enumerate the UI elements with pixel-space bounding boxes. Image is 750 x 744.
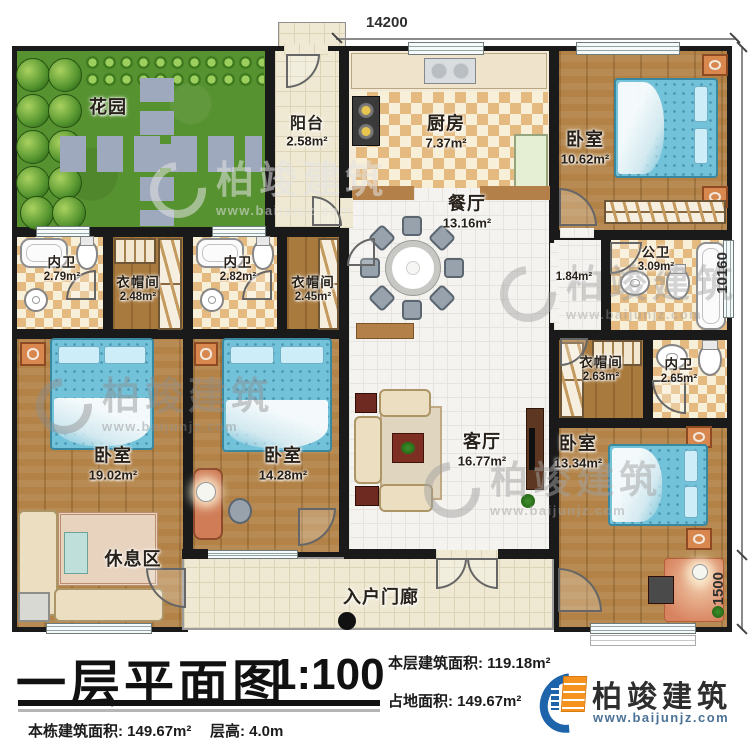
porch-wall-stub	[498, 549, 554, 559]
chair-icon	[402, 300, 422, 320]
pillow-icon	[104, 346, 146, 364]
coffee-table-icon	[392, 433, 424, 463]
brand-url: www.baijunjz.com	[593, 710, 729, 725]
room-label-cloak-left-1: 衣帽间 2.48m²	[116, 275, 160, 305]
garden-tree-icon	[48, 58, 82, 92]
pillow-icon	[230, 346, 274, 364]
room-label-balcony: 阳台 2.58m²	[286, 115, 327, 150]
room-label-dining: 餐厅 13.16m²	[443, 193, 491, 230]
window-icon	[590, 623, 696, 634]
room-label-cloak-left-2: 衣帽间 2.45m²	[291, 275, 335, 305]
plant-icon	[712, 606, 724, 618]
porch-column-icon	[338, 612, 356, 630]
garden-tree-icon	[16, 58, 50, 92]
room-label-garden: 花园	[89, 97, 127, 119]
room-label-kitchen: 厨房 7.37m²	[425, 113, 466, 150]
armchair-icon	[355, 393, 377, 413]
plan-scale: 1:100	[272, 650, 385, 700]
pillow-icon	[684, 486, 698, 518]
porch-wall-stub	[182, 549, 208, 559]
room-label-bedroom-left: 卧室 19.02m²	[89, 445, 137, 482]
pillow-icon	[280, 346, 324, 364]
stove-icon	[352, 96, 380, 146]
lamp-icon	[196, 482, 216, 502]
room-label-living: 客厅 16.77m²	[458, 431, 506, 468]
room-label-bath-left-1: 内卫 2.79m²	[44, 255, 80, 285]
toilet-icon	[698, 344, 722, 376]
corner-table-icon	[18, 592, 50, 622]
pillow-icon	[58, 346, 100, 364]
dimension-right: 10160	[714, 252, 731, 294]
nightstand-icon	[686, 528, 712, 550]
sink-icon	[24, 288, 48, 312]
dimension-line	[741, 48, 743, 556]
kitchen-sink-icon	[424, 58, 476, 84]
title-underline	[18, 700, 380, 706]
window-icon	[212, 226, 266, 237]
wardrobe-icon	[158, 238, 182, 330]
chair-icon	[228, 498, 252, 524]
chair-icon	[402, 216, 422, 236]
nightstand-icon	[194, 342, 218, 366]
armchair-icon	[355, 486, 379, 506]
garden-tree-icon	[48, 94, 82, 128]
room-label-cloak-right: 衣帽间 2.63m²	[579, 355, 623, 385]
garden-bushes-icon	[84, 54, 264, 90]
lamp-icon	[692, 564, 708, 580]
sideboard-icon	[356, 323, 414, 339]
garden-tree-icon	[52, 196, 86, 230]
bedroom-tr-door-gap	[560, 228, 594, 238]
title-underline-2	[18, 709, 380, 712]
sofa-icon	[379, 484, 433, 512]
garden-tree-icon	[16, 166, 50, 200]
nightstand-icon	[702, 54, 728, 76]
tea-table-icon	[64, 532, 88, 574]
floor-height-note: 层高: 4.0m	[210, 720, 283, 741]
bed-sheet-icon	[226, 400, 328, 448]
sofa-icon	[354, 416, 382, 484]
brand-building-icon	[561, 676, 588, 712]
room-label-bedroom-tr: 卧室 10.62m²	[561, 129, 609, 166]
land-area-note: 占地面积: 149.67m²	[388, 690, 521, 711]
floor-plan-sheet: 花园 阳台 2.58m² 厨房 7.37m² 卧室 10.62m² 餐厅 13.…	[0, 0, 750, 744]
room-label-bedroom-br: 卧室 13.34m²	[554, 433, 602, 470]
dimension-right-lower: 1500	[710, 572, 727, 605]
room-label-public-bath: 公卫 3.09m²	[638, 245, 674, 275]
garden-path-icon	[60, 136, 262, 172]
room-label-porch: 入户门廊	[343, 587, 419, 609]
sofa-icon	[54, 588, 164, 622]
clothes-rack-icon	[114, 238, 156, 264]
desk-icon	[193, 468, 223, 540]
room-label-bedroom-mid: 卧室 14.28m²	[259, 445, 307, 482]
window-icon	[206, 550, 298, 559]
bed-sheet-icon	[618, 82, 664, 174]
window-icon	[36, 226, 90, 237]
steps-icon	[590, 635, 696, 646]
room-name: 花园	[89, 97, 127, 119]
wardrobe-icon	[604, 200, 726, 224]
brand-building-windows-icon	[551, 684, 559, 710]
building-area-note: 本栋建筑面积: 149.67m²	[28, 720, 191, 741]
room-label-hallway: 1.84m²	[556, 271, 592, 285]
garden-tree-icon	[16, 94, 50, 128]
garden-tree-icon	[20, 196, 54, 230]
window-icon	[408, 42, 484, 55]
pillow-icon	[694, 128, 708, 164]
bed-sheet-icon	[612, 448, 662, 522]
dimension-top: 14200	[366, 14, 408, 31]
room-label-bath-left-2: 内卫 2.82m²	[220, 255, 256, 285]
room-label-bath-right: 内卫 2.65m²	[661, 357, 697, 387]
room-hallway	[554, 235, 606, 335]
sofa-icon	[379, 389, 431, 417]
floor-area-note: 本层建筑面积: 119.18m²	[388, 652, 551, 673]
sink-icon	[200, 288, 224, 312]
chair-icon	[444, 258, 464, 278]
plant-icon	[521, 494, 535, 508]
kitchen-doorframe	[352, 186, 414, 200]
window-icon	[576, 42, 680, 55]
pillow-icon	[684, 450, 698, 482]
dimension-line	[741, 556, 743, 630]
room-label-rest-area: 休息区	[105, 549, 162, 571]
window-icon	[46, 623, 152, 634]
nightstand-icon	[20, 342, 46, 366]
garden-tree-icon	[16, 130, 50, 164]
fridge-icon	[514, 134, 548, 190]
pillow-icon	[694, 86, 708, 122]
porch-wall-stub	[344, 549, 436, 559]
bed-sheet-icon	[54, 398, 150, 446]
tv-icon	[529, 428, 535, 470]
dining-table-center	[406, 261, 420, 275]
desk-chair-icon	[648, 576, 674, 604]
dimension-line	[336, 38, 736, 40]
